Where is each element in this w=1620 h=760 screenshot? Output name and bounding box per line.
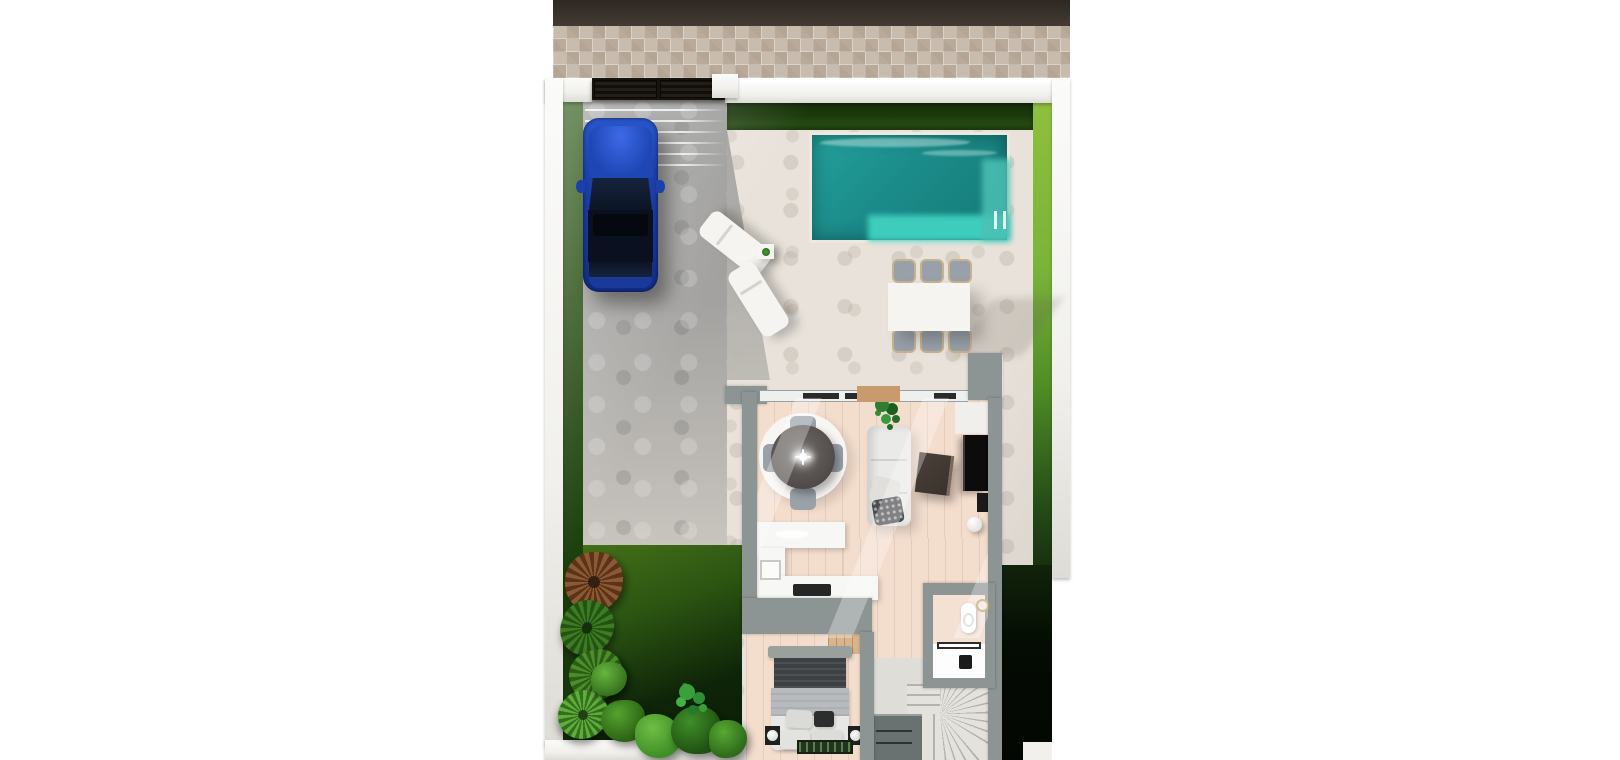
kitchen-bedroom-wall <box>742 598 872 634</box>
shower-glass-frame <box>937 642 981 649</box>
dining-chair-indoor <box>790 488 816 510</box>
hedge-strip <box>727 100 1033 130</box>
coffee-table <box>915 452 955 496</box>
bed-frame <box>768 646 852 658</box>
car-mirror-right <box>656 180 665 193</box>
wall-block-top-right <box>968 353 1002 400</box>
street-road <box>553 0 1070 26</box>
bed-blanket <box>774 658 846 688</box>
neighbour-plot-wall <box>1023 742 1052 760</box>
black-shower-tap <box>959 655 972 669</box>
bathroom-floor <box>933 595 985 678</box>
floorplan-scene <box>545 0 1070 760</box>
kitchen-sink <box>760 560 781 580</box>
house-wall-right <box>988 398 1002 760</box>
potted-plant-small <box>762 248 770 256</box>
pool-ripple <box>920 150 998 156</box>
cooktop <box>793 584 831 596</box>
round-mirror <box>976 599 989 612</box>
toilet <box>961 603 976 633</box>
house-wall-left <box>742 392 757 632</box>
car-trunk <box>589 277 652 288</box>
outdoor-chair <box>948 329 972 353</box>
neighbour-plot-dark <box>1002 565 1052 760</box>
tv-screen <box>963 435 989 491</box>
sliding-door-frame <box>803 393 839 399</box>
perimeter-wall-right <box>1052 78 1070 578</box>
outdoor-dining-table <box>888 283 970 331</box>
nightstand-lamp <box>765 726 780 745</box>
window-frame <box>934 393 956 399</box>
car-sunroof <box>593 214 648 236</box>
round-dining-table <box>771 425 835 489</box>
car-windshield <box>589 178 652 210</box>
broadleaf-plant <box>679 684 695 700</box>
kitchen-counter-top <box>757 522 845 548</box>
perimeter-wall-left <box>545 78 563 746</box>
bedroom-rug <box>797 740 853 754</box>
outdoor-chair <box>892 259 916 283</box>
pool-ladder <box>994 211 1006 229</box>
car-mirror-left <box>576 180 585 193</box>
parked-car <box>583 118 658 292</box>
storage-cabinet <box>868 714 922 760</box>
lounger-side-table <box>757 244 774 259</box>
media-shelf <box>955 402 988 434</box>
car-rear-window <box>589 262 652 277</box>
pool-ripple <box>817 138 973 147</box>
bed-pillow <box>786 709 813 728</box>
speaker <box>977 493 988 512</box>
grass-strip-right <box>1033 100 1052 578</box>
outdoor-chair <box>920 259 944 283</box>
wood-lintel <box>857 386 900 402</box>
perimeter-wall-top <box>725 84 1052 103</box>
gate-panel-left <box>594 80 657 98</box>
bathroom <box>923 583 995 688</box>
swimming-pool <box>809 132 1010 243</box>
gate-pillar-right <box>712 74 738 98</box>
tiled-sidewalk <box>553 26 1070 78</box>
chandelier-glow <box>799 453 807 461</box>
bed-pillow-dark <box>814 711 834 727</box>
outdoor-chair <box>920 329 944 353</box>
entrance-gate <box>592 78 725 100</box>
round-side-table <box>967 517 982 532</box>
outdoor-chair <box>892 329 916 353</box>
throw-pillow-dark <box>871 496 905 527</box>
bedroom-wall-right <box>860 632 874 760</box>
car-hood <box>589 126 652 178</box>
chandelier-sparkle <box>795 449 811 465</box>
outdoor-chair <box>948 259 972 283</box>
render-canvas <box>0 0 1620 760</box>
